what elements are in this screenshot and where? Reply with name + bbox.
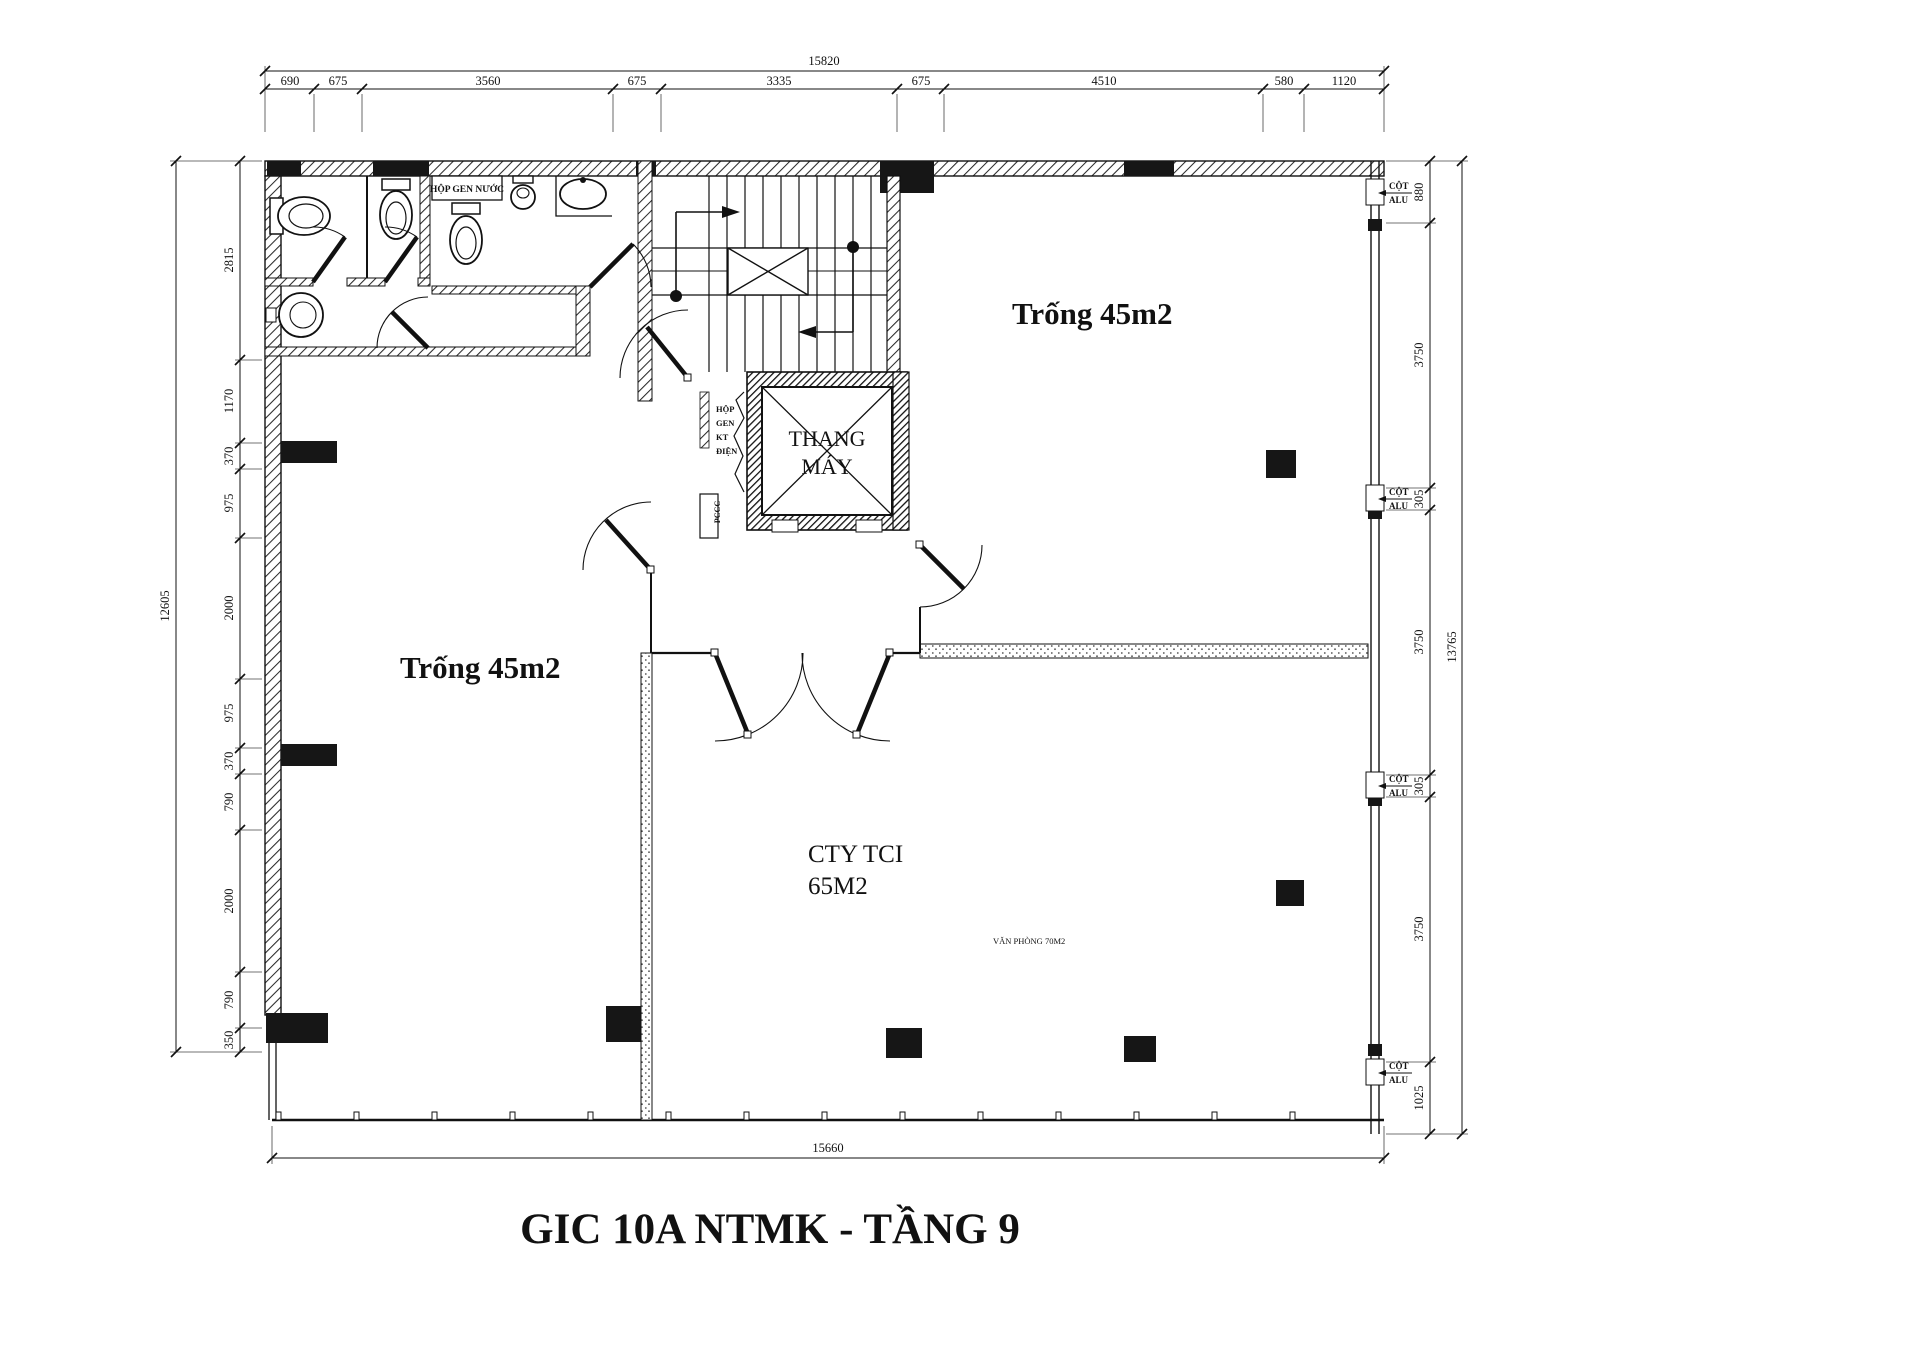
svg-text:4510: 4510 <box>1092 74 1117 88</box>
svg-text:1170: 1170 <box>222 389 236 414</box>
electrical-riser: HỘP GEN KT ĐIỆN PCCC <box>700 392 744 538</box>
svg-text:ALU: ALU <box>1389 195 1409 205</box>
svg-text:ĐIỆN: ĐIỆN <box>716 446 738 456</box>
svg-text:15660: 15660 <box>812 1141 843 1155</box>
svg-text:CỘT: CỘT <box>1389 774 1409 784</box>
svg-text:580: 580 <box>1275 74 1294 88</box>
svg-text:3750: 3750 <box>1412 630 1426 655</box>
svg-text:ALU: ALU <box>1389 501 1409 511</box>
svg-text:975: 975 <box>222 494 236 513</box>
svg-text:15820: 15820 <box>808 54 839 68</box>
office-area-label: 65M2 <box>808 873 868 900</box>
office-name-label: CTY TCI <box>808 841 903 868</box>
svg-text:790: 790 <box>222 793 236 812</box>
svg-text:2000: 2000 <box>222 889 236 914</box>
dimension-bottom: 15660 <box>267 1126 1389 1164</box>
svg-text:1025: 1025 <box>1412 1086 1426 1111</box>
svg-text:690: 690 <box>281 74 300 88</box>
svg-text:KT: KT <box>716 432 729 442</box>
svg-text:2815: 2815 <box>222 248 236 273</box>
office-note-label: VĂN PHÒNG 70M2 <box>993 936 1065 946</box>
sheet-title: GIC 10A NTMK - TẦNG 9 <box>520 1205 1020 1253</box>
interior-partitions <box>641 570 1368 1120</box>
counter-sink-icon <box>556 176 612 216</box>
title-block: ĐỊA ĐIỂM: 10A NGUYỄN THỊ MINH KHAI, P ĐA… <box>1580 0 1920 1358</box>
elevator-shaft: THANG MÁY HỘP GEN KT ĐIỆN PCCC <box>700 372 909 538</box>
svg-text:1120: 1120 <box>1332 74 1357 88</box>
svg-text:3750: 3750 <box>1412 917 1426 942</box>
svg-text:CỘT: CỘT <box>1389 1061 1409 1071</box>
svg-text:975: 975 <box>222 704 236 723</box>
svg-text:ALU: ALU <box>1389 788 1409 798</box>
alu-column-callouts: CỘT ALU CỘT ALU CỘT ALU CỘT ALU <box>1378 181 1412 1085</box>
left-room-label: Trống 45m2 <box>400 650 560 685</box>
fire-cabinet-label: PCCC <box>713 501 722 523</box>
dimension-top: 15820 690 675 3560 675 3335 675 4510 580… <box>260 54 1389 132</box>
svg-text:3750: 3750 <box>1412 343 1426 368</box>
svg-text:370: 370 <box>222 752 236 771</box>
svg-text:3335: 3335 <box>767 74 792 88</box>
dimension-left: 12605 2815 1170 370 975 2000 975 370 790… <box>158 156 262 1057</box>
floor-plan: HỘP GEN NƯỚC <box>0 0 1580 1358</box>
svg-text:12605: 12605 <box>158 590 172 621</box>
elevator-label-1: THANG <box>789 426 866 451</box>
svg-text:CỘT: CỘT <box>1389 181 1409 191</box>
svg-text:HỘP: HỘP <box>716 404 734 414</box>
svg-text:CỘT: CỘT <box>1389 487 1409 497</box>
svg-text:305: 305 <box>1412 777 1426 796</box>
elevator-label-2: MÁY <box>801 454 852 479</box>
svg-text:ALU: ALU <box>1389 1075 1409 1085</box>
svg-text:GEN: GEN <box>716 418 735 428</box>
svg-text:675: 675 <box>628 74 647 88</box>
svg-text:350: 350 <box>222 1031 236 1050</box>
svg-text:370: 370 <box>222 447 236 466</box>
toilet-icon <box>450 203 482 264</box>
svg-text:790: 790 <box>222 991 236 1010</box>
svg-text:305: 305 <box>1412 490 1426 509</box>
toilet-icon <box>270 197 330 235</box>
drawing-sheet: HỘP GEN NƯỚC <box>0 0 1920 1358</box>
svg-text:2000: 2000 <box>222 596 236 621</box>
svg-text:675: 675 <box>329 74 348 88</box>
svg-text:675: 675 <box>912 74 931 88</box>
toilet-icon <box>380 179 412 239</box>
svg-text:880: 880 <box>1412 183 1426 202</box>
svg-text:3560: 3560 <box>476 74 501 88</box>
svg-text:13765: 13765 <box>1445 631 1459 662</box>
dimension-right: 880 3750 305 3750 305 3750 1025 13765 <box>1386 156 1468 1139</box>
urinal-icon <box>511 176 535 209</box>
right-room-label: Trống 45m2 <box>1012 296 1172 331</box>
